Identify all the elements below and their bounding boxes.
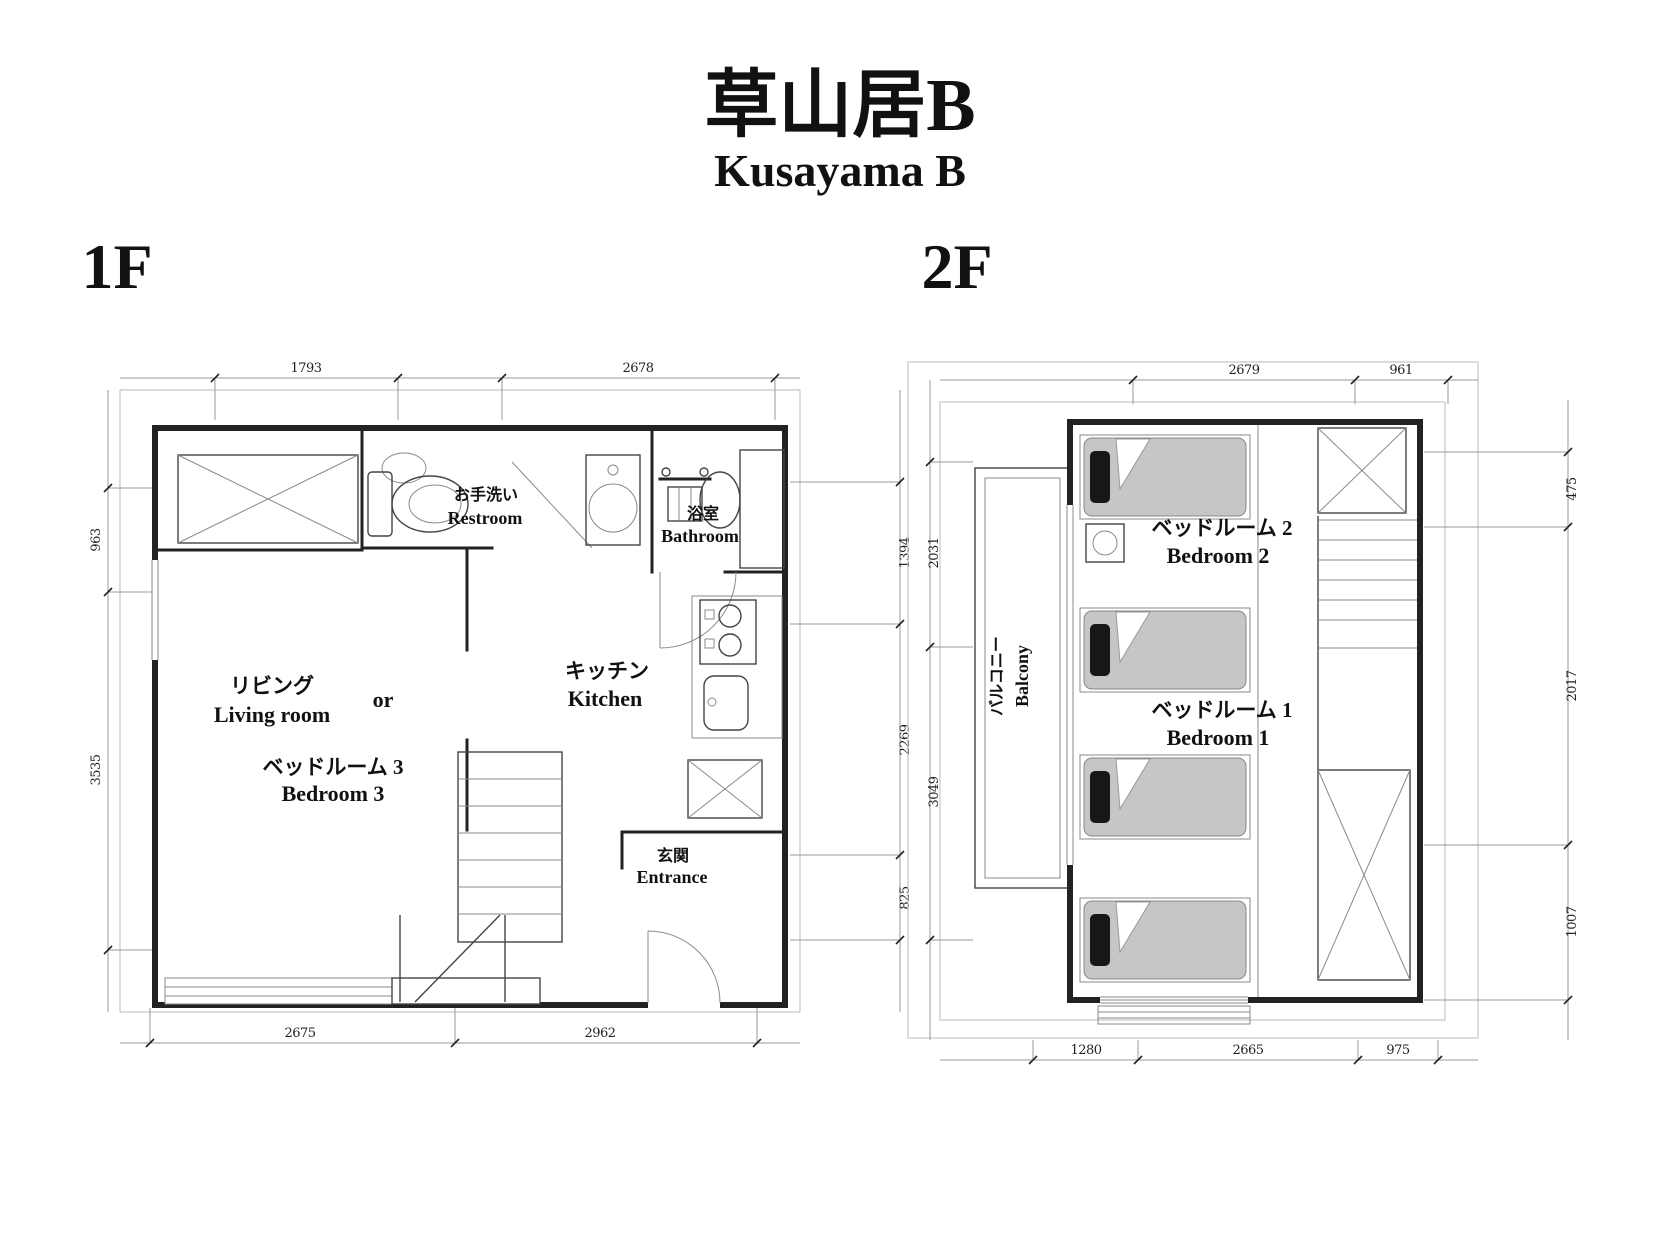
dim-label: 1793 — [290, 361, 321, 376]
stairs-icon — [1318, 520, 1417, 648]
dim-label: 2269 — [898, 724, 913, 755]
stairs-icon — [400, 752, 562, 1002]
closet-icon — [1318, 428, 1406, 513]
page-title-en: Kusayama B — [714, 145, 966, 196]
kitchen-label-jp: キッチン — [565, 659, 649, 683]
living-room-label-en: Living room — [214, 702, 330, 727]
washing-machine-icon — [586, 455, 640, 545]
bed-icon — [1080, 435, 1250, 519]
floor2-dim-left: 2031 3049 — [926, 380, 973, 1040]
floor1-dim-right: 1394 2269 825 — [790, 390, 913, 1012]
bed-icon — [1080, 898, 1250, 982]
dim-label: 2665 — [1232, 1043, 1263, 1058]
dim-label: 2017 — [1565, 670, 1580, 701]
dim-label: 2962 — [584, 1026, 615, 1041]
bathroom-label-jp: 浴室 — [687, 504, 719, 523]
window-icon — [165, 978, 540, 1004]
floor2-dim-bottom: 1280 2665 975 — [940, 1040, 1478, 1064]
entrance-label-jp: 玄関 — [657, 846, 689, 865]
stove-icon — [700, 600, 756, 664]
entrance-walls — [622, 832, 785, 868]
bedroom1-label-jp: ベッドルーム 1 — [1151, 698, 1292, 722]
restroom-label-en: Restroom — [448, 508, 523, 528]
balcony-label-en: Balcony — [1012, 645, 1032, 707]
dim-label: 2679 — [1228, 363, 1259, 378]
dim-label: 961 — [1389, 363, 1412, 378]
bedroom2-label-en: Bedroom 2 — [1167, 543, 1270, 568]
balcony-label-jp: バルコニー — [988, 636, 1006, 716]
kitchen-sink-icon — [704, 676, 748, 730]
dim-label: 2675 — [284, 1026, 315, 1041]
window-icon — [148, 560, 162, 660]
floor1-boundary — [120, 390, 800, 1012]
floor2-label: 2F — [921, 231, 992, 302]
dim-label: 3049 — [927, 776, 942, 807]
floor2-plan: バルコニー Balcony — [908, 362, 1580, 1064]
bed-icon — [1080, 608, 1250, 692]
dim-label: 975 — [1386, 1043, 1410, 1058]
dim-label: 3535 — [89, 754, 104, 785]
floor1-plan: リビング Living room or ベッドルーム 3 Bedroom 3 キ… — [89, 361, 913, 1047]
floorplan-canvas: 草山居B Kusayama B 1F 2F — [0, 0, 1680, 1260]
balcony-door-icon — [1063, 505, 1077, 865]
bedroom3-label-en: Bedroom 3 — [282, 781, 385, 806]
dim-label: 825 — [898, 886, 913, 910]
closet-icon — [178, 455, 358, 543]
page-title-jp: 草山居B — [704, 65, 975, 147]
floor1-label: 1F — [81, 231, 152, 302]
closet-icon — [1318, 770, 1410, 980]
bedroom2-label-jp: ベッドルーム 2 — [1151, 516, 1292, 540]
restroom-label-jp: お手洗い — [454, 485, 518, 504]
living-room-label-jp: リビング — [230, 674, 314, 698]
dim-label: 2031 — [927, 537, 942, 568]
floor2-dim-top: 2679 961 — [940, 363, 1478, 404]
floor1-dim-bottom: 2675 2962 — [120, 1008, 800, 1047]
entrance-door-icon — [648, 931, 720, 1011]
bedroom1-label-en: Bedroom 1 — [1167, 725, 1270, 750]
dim-label: 963 — [89, 528, 104, 552]
dim-label: 1280 — [1070, 1043, 1101, 1058]
dim-label: 1007 — [1565, 906, 1580, 937]
dim-label: 1394 — [898, 537, 913, 568]
washbasin-icon — [1086, 524, 1124, 562]
bedroom3-label-jp: ベッドルーム 3 — [262, 755, 403, 779]
kitchen-label-en: Kitchen — [568, 686, 643, 711]
entrance-label-en: Entrance — [637, 867, 708, 887]
dim-label: 2678 — [622, 361, 653, 376]
or-label: or — [373, 687, 394, 712]
restroom-door-icon — [512, 462, 592, 548]
floor2-dim-right: 475 2017 1007 — [1424, 400, 1580, 1040]
bathroom-label-en: Bathroom — [661, 526, 739, 546]
bed-icon — [1080, 755, 1250, 839]
dim-label: 475 — [1565, 477, 1580, 501]
fridge-icon — [688, 760, 762, 818]
